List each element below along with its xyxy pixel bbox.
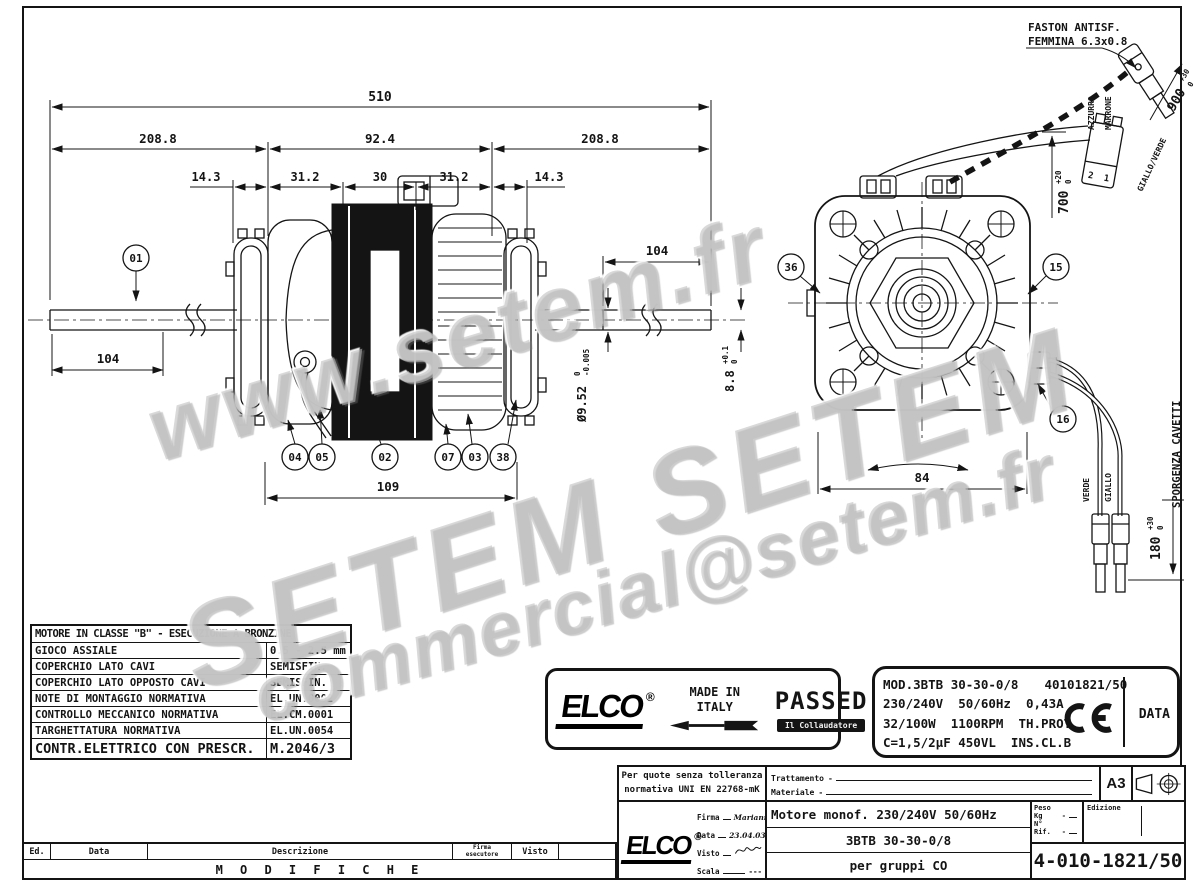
dim-31-left-label: 31.2 [291,170,320,184]
rev-descrizione-header: Descrizione [148,844,453,859]
spec-table-header: MOTORE IN CLASSE "B" - ESECUZIONE A BRON… [32,626,350,643]
dim-30-label: 30 [373,170,387,184]
table-row: COPERCHIO LATO OPPOSTO CAVISEMISFIN. [32,675,350,691]
svg-text:16: 16 [1056,413,1070,426]
svg-text:2: 2 [1087,171,1094,182]
balloon-02: 02 [372,444,398,470]
mount-bracket-left [226,229,268,425]
rev-visto-header: Visto [512,844,559,859]
wiring: 2 1 AZZURRO MARRONE 700 +20 0 GIALLO/VER… [878,21,1200,592]
endshield-left [268,220,332,438]
faston-note-line2: FEMMINA 6.3x0.8 [1028,35,1127,48]
rev-data-header: Data [51,844,148,859]
svg-text:03: 03 [468,451,481,464]
nameplate-model: MOD.3BTB 30-30-0/8 [883,675,1018,694]
rev-firma-header: Firma esecutore [453,844,512,859]
title-line-1: Motore monof. 230/240V 50/60Hz [767,802,1030,828]
technical-drawing: 510 208.8 92.4 208.8 14.3 31.2 30 31.2 1… [0,0,1200,660]
svg-text:05: 05 [315,451,328,464]
wire-label-verde: VERDE [1082,478,1091,502]
top-tabs [860,176,962,198]
table-row: COPERCHIO LATO CAVISEMISFIN. [32,659,350,675]
dim-104-right-label: 104 [646,243,669,258]
cable-length-180-label: 180 +30 0 [1146,516,1165,560]
balloon-15: 15 [1043,254,1069,280]
dim-14-right-label: 14.3 [535,170,564,184]
balloon-05: 05 [309,444,335,470]
svg-text:+30: +30 [1146,516,1155,530]
balloon-01: 01 [123,245,149,271]
motor-nameplate: MOD.3BTB 30-30-0/8 40101821/50 230/240V … [872,666,1180,758]
svg-text:07: 07 [441,451,454,464]
wire-label-marrone: MARRONE [1104,96,1113,130]
balloon-38: 38 [490,444,516,470]
table-row: CONTR.ELETTRICO CON PRESCR.M.2046/3 [32,739,350,758]
table-row: GIOCO ASSIALE0.5 - 2.5 mm [32,643,350,659]
engineering-drawing-page: { "watermarks": { "w1": "www.setem.fr", … [0,0,1200,887]
svg-text:04: 04 [288,451,302,464]
svg-text:+0.1: +0.1 [721,345,730,364]
nameplate-data-label: DATA [1139,707,1170,722]
revision-strip: Ed. Data Descrizione Firma esecutore Vis… [22,842,617,880]
svg-text:38: 38 [496,451,509,464]
balloon-36: 36 [778,254,804,280]
svg-text:Ø9.52: Ø9.52 [575,386,589,423]
cable-exit [1028,352,1056,384]
svg-text:0: 0 [730,359,739,364]
motor-spec-table: MOTORE IN CLASSE "B" - ESECUZIONE A BRON… [30,624,352,760]
drawing-number: 4-010-1821/50 [1032,842,1184,878]
table-row: NOTE DI MONTAGGIO NORMATIVAEL.UN.0002 [32,691,350,707]
side-view-balloons: 01 04 05 02 07 03 38 [123,245,516,470]
endshield-right [432,214,506,430]
rev-ed-header: Ed. [24,844,51,859]
dim-84-label: 84 [914,470,929,485]
elco-logo: ELCO ® [623,832,702,864]
ce-mark-icon [1061,699,1115,737]
shaft-diameter-label: Ø9.52 0 -0.005 [573,349,591,423]
wire-length-900-label: 900 +30 0 [1162,67,1200,115]
balloon-16: 16 [1050,406,1076,432]
svg-text:0: 0 [1064,179,1073,184]
title-line-3: per gruppi CO [767,853,1030,878]
quality-passed-label: ELCO ® MADE IN ITALY PASSED Il Collaudat… [545,668,841,750]
dim-92-label: 92.4 [365,131,395,146]
passed-stamp: PASSED [775,687,868,715]
material-cell: Trattamento- Materiale- [767,767,1099,802]
nameplate-power: 32/100W 1100RPM TH.PROT [883,714,1169,733]
shaft-flat-label: 8.8 +0.1 0 [721,345,739,392]
signature-cell: ELCO ® FirmaMariani Data23.04.03 Visto S… [619,802,767,878]
left-arrow-icon [667,718,763,733]
svg-text:0: 0 [1156,525,1165,530]
dim-104-left-label: 104 [97,351,120,366]
svg-text:-0.005: -0.005 [582,349,591,376]
title-block: Per quote senza tolleranza normativa UNI… [617,765,1186,880]
svg-text:1: 1 [1103,174,1110,185]
edition-cell: Edizione [1084,802,1184,842]
dim-109-label: 109 [377,479,400,494]
svg-text:+20: +20 [1054,170,1063,184]
wire-label-giallo-verde: GIALLO/VERDE [1136,136,1169,192]
tester-badge: Il Collaudatore [777,719,865,732]
dim-31-right-label: 31.2 [440,170,469,184]
signature-icon [734,842,762,858]
faston-note-line1: FASTON ANTISF. [1028,21,1121,34]
dim-208-right-label: 208.8 [581,131,619,146]
sheet-format: A3 [1099,767,1131,802]
dim-14-left-label: 14.3 [192,170,221,184]
balloon-07: 07 [435,444,461,470]
table-row: CONTROLLO MECCANICO NORMATIVAEL.CM.0001 [32,707,350,723]
table-row: TARGHETTATURA NORMATIVAEL.UN.0054 [32,723,350,739]
mount-bracket-right [504,229,546,425]
svg-text:0: 0 [573,371,582,376]
stator-stack [332,204,432,440]
svg-text:36: 36 [784,261,798,274]
svg-text:02: 02 [378,451,391,464]
tolerance-note: Per quote senza tolleranza normativa UNI… [619,767,767,802]
rev-tail-cell [559,844,615,859]
dim-510-label: 510 [368,90,392,105]
faston-terminal-verde [1092,514,1109,592]
wire-length-700-label: 700 +20 0 [1054,170,1073,214]
earth-wire [950,70,1130,182]
svg-text:700: 700 [1057,190,1072,214]
elco-logo: ELCO ® [558,690,655,729]
drawing-title: Motore monof. 230/240V 50/60Hz 3BTB 30-3… [767,802,1032,878]
faston-terminal-giallo [1112,514,1129,592]
balloon-04: 04 [282,444,308,470]
svg-text:01: 01 [129,252,143,265]
motor-front-view: 84 36 15 16 [778,176,1076,494]
nameplate-serial: 40101821/50 [1044,675,1127,694]
edition-mark [1141,806,1142,836]
wire-label-giallo: GIALLO [1104,473,1113,502]
made-in-italy: MADE IN ITALY [667,685,763,733]
svg-text:15: 15 [1049,261,1062,274]
motor-side-view [28,176,748,440]
weight-cell: Peso Kg- N° Rif.- [1032,802,1084,842]
svg-text:0: 0 [1186,80,1196,89]
cable-note-label: SPORGENZA CAVETTI [1171,401,1183,508]
projection-symbol-icon [1131,767,1184,802]
dim-208-left-label: 208.8 [139,131,177,146]
svg-text:180: 180 [1149,536,1164,560]
nameplate-capacitor: C=1,5/2µF 450VL INS.CL.B [883,733,1169,752]
modifiche-label: M O D I F I C H E [24,860,615,879]
nameplate-divider [1123,677,1125,747]
title-line-2: 3BTB 30-30-0/8 [767,828,1030,854]
svg-text:900: 900 [1164,86,1189,114]
balloon-03: 03 [462,444,488,470]
nameplate-electrical: 230/240V 50/60Hz 0,43A [883,694,1169,713]
svg-text:8.8: 8.8 [723,370,737,392]
